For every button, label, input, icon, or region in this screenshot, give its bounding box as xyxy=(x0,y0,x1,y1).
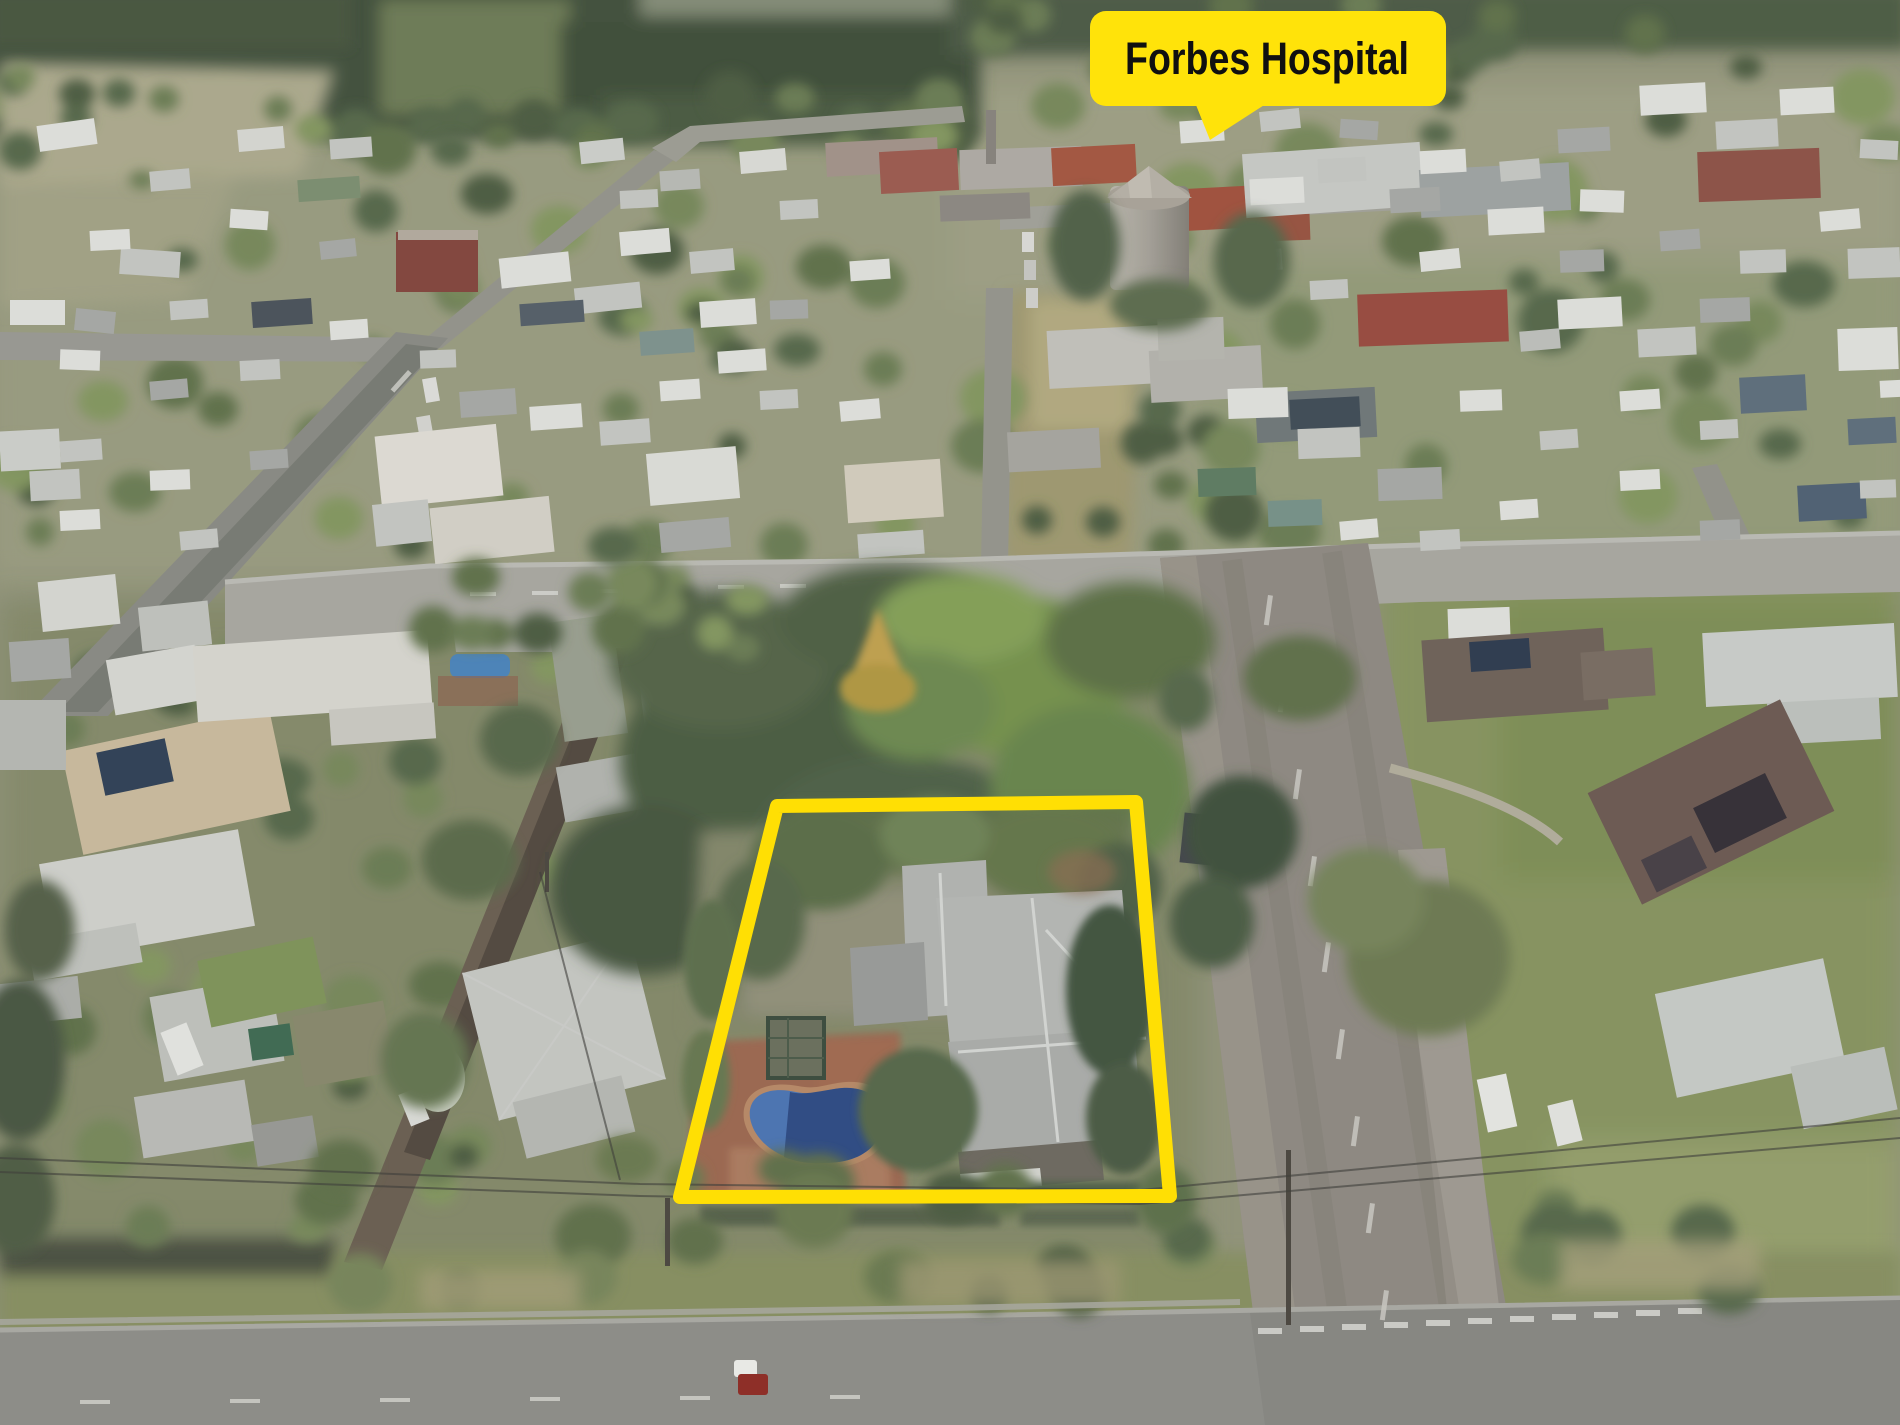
svg-text:Forbes Hospital: Forbes Hospital xyxy=(1125,33,1409,84)
